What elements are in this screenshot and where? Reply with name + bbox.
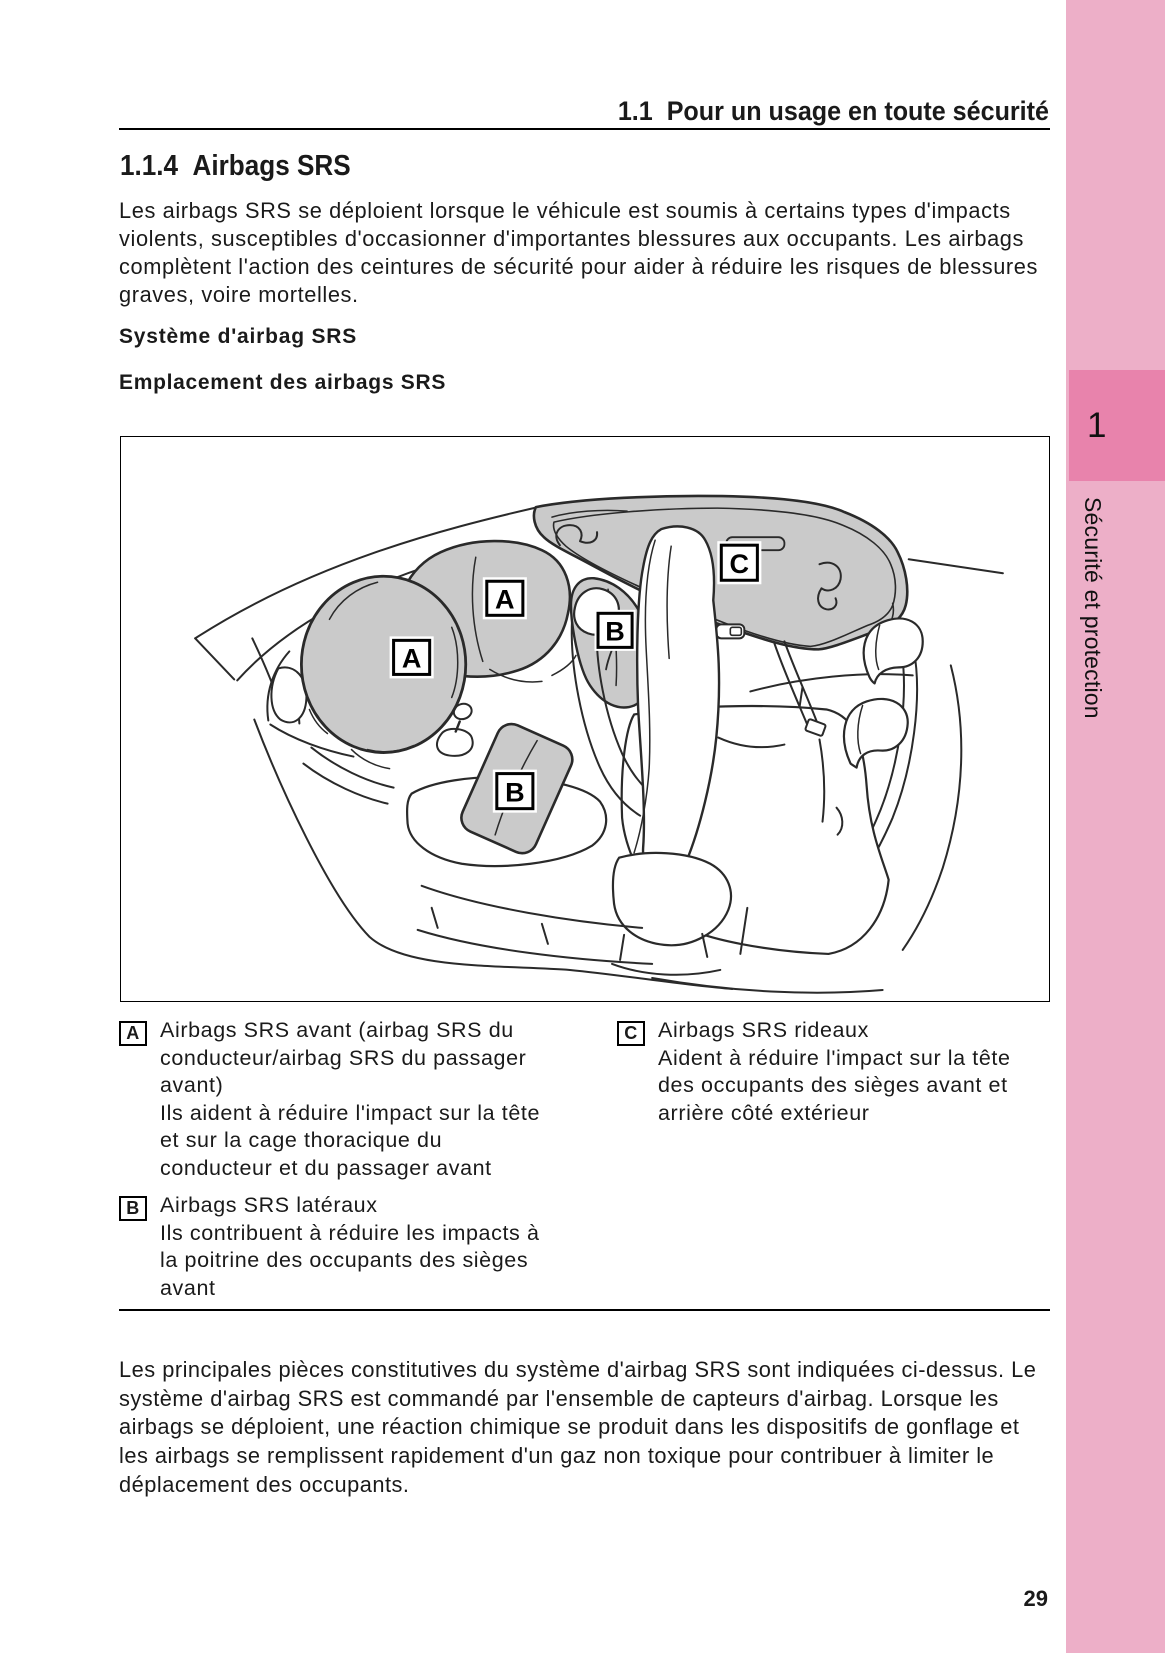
svg-text:B: B [605, 616, 625, 646]
svg-text:C: C [730, 549, 750, 579]
svg-text:A: A [402, 643, 422, 673]
svg-text:B: B [505, 778, 525, 808]
svg-text:A: A [495, 584, 515, 614]
